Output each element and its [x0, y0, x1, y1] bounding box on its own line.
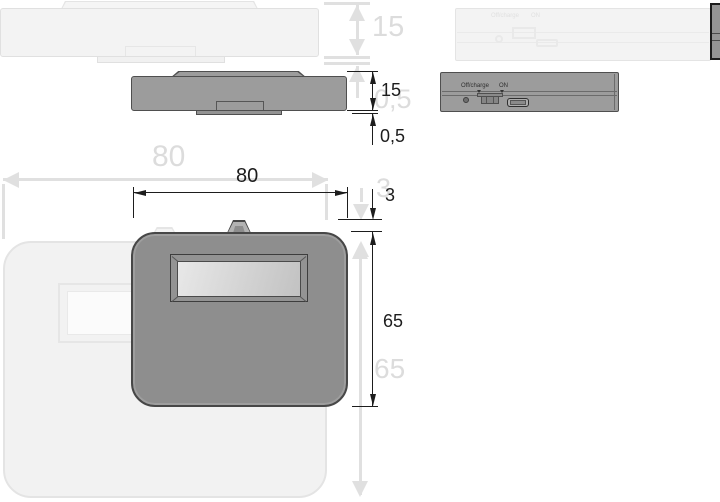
led-indicator: [463, 97, 469, 103]
technical-drawing-canvas: 15 0,5 Off/charge ON 80 3: [0, 0, 720, 502]
switch-label-off-ghost: Off/charge: [491, 13, 519, 19]
switch-label-off-charge: Off/charge: [461, 83, 489, 89]
dim-width-label-ghost: 80: [152, 142, 185, 172]
switch-label-on: ON: [499, 83, 508, 89]
dim-offset-label: 0,5: [380, 127, 405, 145]
base-foot-ghost: [97, 56, 225, 63]
dim-height-label: 15: [381, 81, 401, 99]
dim-width-label: 80: [236, 166, 258, 186]
led-indicator-ghost: [495, 35, 503, 43]
device-body-rear: [440, 72, 619, 112]
base-foot-front: [196, 110, 282, 115]
dim-height-label-ghost: 15: [372, 13, 404, 42]
dim-depth-label: 65: [383, 312, 403, 330]
label-window: [177, 261, 301, 297]
dim-depth-label-ghost: 65: [374, 355, 405, 383]
usb-port-ghost: [536, 39, 558, 47]
power-switch-ghost: [512, 27, 536, 39]
switch-label-on-ghost: ON: [531, 13, 540, 19]
side-edge-view: [710, 3, 720, 60]
dim-clip-label: 3: [385, 186, 395, 204]
